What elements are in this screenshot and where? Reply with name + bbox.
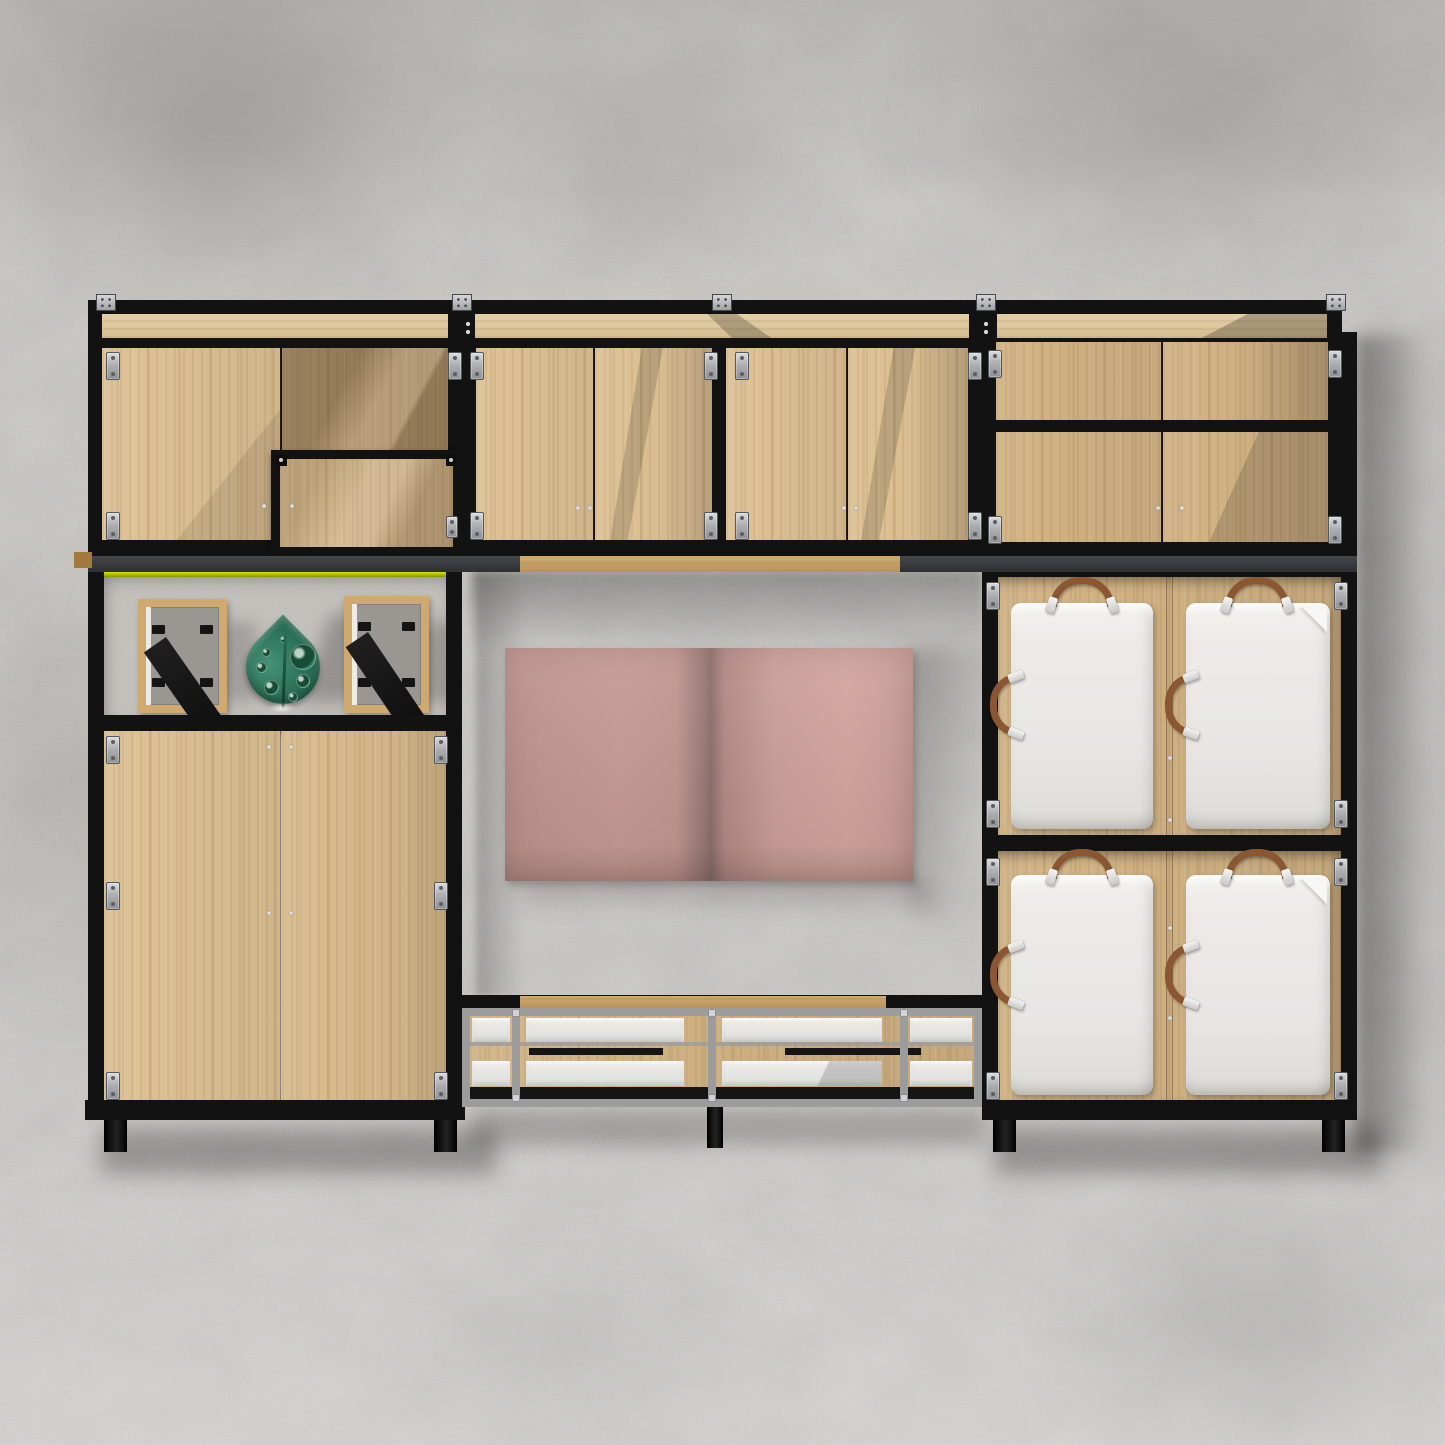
upper-cabinet-center xyxy=(462,300,982,556)
support-leg xyxy=(993,1120,1016,1152)
door-zone xyxy=(476,348,712,540)
frame-clip-icon xyxy=(152,625,165,634)
screw-dot xyxy=(289,745,293,749)
hinge-icon xyxy=(106,736,120,764)
screw-dot xyxy=(289,911,293,915)
hinge-icon xyxy=(986,582,1000,610)
cabinet-door xyxy=(104,731,280,1100)
locker-row xyxy=(998,577,1341,835)
hinge-icon xyxy=(988,350,1002,378)
support-leg xyxy=(707,1107,723,1148)
hinge-icon xyxy=(704,352,718,380)
panel-shade xyxy=(475,314,969,338)
inset-cabinet xyxy=(271,450,462,556)
screw-dot xyxy=(588,506,592,510)
top-panel xyxy=(102,314,448,338)
hinge-icon xyxy=(106,512,120,540)
door-zone xyxy=(726,348,968,540)
door-shade xyxy=(848,348,968,540)
door-edge-shade xyxy=(282,731,446,1100)
frame-joint xyxy=(901,1010,907,1016)
tall-cabinet xyxy=(104,731,446,1100)
screw-dot xyxy=(290,504,294,508)
door-edge-shade xyxy=(595,348,712,540)
hinge-icon xyxy=(1334,582,1348,610)
hinge-icon xyxy=(986,800,1000,828)
mount-bracket-icon xyxy=(976,294,996,311)
strap-handle xyxy=(1165,673,1195,737)
hinge-icon xyxy=(1334,800,1348,828)
wall-blotch xyxy=(360,1230,780,1445)
strap-handle xyxy=(1225,849,1289,879)
hinge-icon xyxy=(988,516,1002,544)
strap-handle xyxy=(990,673,1020,737)
screw-dot xyxy=(1156,506,1160,510)
left-column-post xyxy=(446,556,462,1100)
hinge-icon xyxy=(735,352,749,380)
support-leg xyxy=(104,1120,127,1152)
corner-bracket-icon xyxy=(276,455,287,466)
leaf-hole xyxy=(256,662,267,673)
frame-joint xyxy=(709,1010,715,1016)
locker-door xyxy=(998,577,1166,835)
leaf-hole xyxy=(296,674,310,688)
locker-cabinet xyxy=(982,560,1357,1120)
wall-blotch xyxy=(430,40,850,300)
middle-rail-wood-insert xyxy=(520,556,900,572)
locker-door xyxy=(1173,851,1341,1100)
upholstered-panel xyxy=(1186,875,1330,1095)
hinge-icon xyxy=(106,1072,120,1100)
shelf-bottom-rail xyxy=(88,715,462,731)
hinge-icon xyxy=(470,512,484,540)
bench-mid-rail xyxy=(470,1042,974,1046)
cabinet-door xyxy=(595,348,712,540)
middle-rail-end-tab xyxy=(74,552,92,568)
hinge-icon xyxy=(446,516,458,538)
screw-dot xyxy=(267,911,271,915)
hinge-icon xyxy=(434,1072,448,1100)
cabinet-door xyxy=(1163,432,1328,542)
cabinet-door xyxy=(476,348,593,540)
mount-bracket-icon xyxy=(712,294,732,311)
inset-door xyxy=(280,459,453,547)
wall-blotch xyxy=(880,0,1445,300)
hinge-icon xyxy=(106,882,120,910)
frame-clip-icon xyxy=(402,622,415,631)
hinge-icon xyxy=(1334,858,1348,886)
hinge-icon xyxy=(735,512,749,540)
frame-joint xyxy=(709,1095,715,1101)
mount-bracket-icon xyxy=(452,294,472,311)
drawer-front xyxy=(1163,342,1328,420)
hinge-icon xyxy=(1328,350,1342,378)
cabinet-door xyxy=(102,348,280,540)
hinge-icon xyxy=(968,352,982,380)
drawer-shade xyxy=(1163,342,1328,420)
middle-rail xyxy=(88,556,1357,572)
leaf-hole xyxy=(262,648,271,657)
screw-dot xyxy=(1168,756,1172,760)
strap-handle xyxy=(1165,943,1195,1007)
furniture-render xyxy=(0,0,1445,1445)
drawer-row xyxy=(996,342,1328,420)
hinge-icon xyxy=(448,352,462,380)
screw-dot xyxy=(1180,506,1184,510)
right-side-post xyxy=(1342,332,1357,572)
screw-dot xyxy=(854,506,858,510)
hinge-icon xyxy=(434,882,448,910)
hinge-icon xyxy=(986,858,1000,886)
support-leg xyxy=(434,1120,457,1152)
screw-dot xyxy=(984,330,988,334)
bench-post xyxy=(900,1008,908,1107)
locker-door xyxy=(998,851,1166,1100)
door-shade xyxy=(1163,432,1328,542)
frame-clip-icon xyxy=(358,622,371,631)
drawer-front xyxy=(996,342,1161,420)
strap-handle xyxy=(1225,577,1289,607)
screw-dot xyxy=(984,322,988,326)
screw-dot xyxy=(267,745,271,749)
top-panel xyxy=(475,314,969,338)
frame-clip-icon xyxy=(200,625,213,634)
leaf-hole xyxy=(264,680,279,695)
leaf-gloss xyxy=(268,703,296,713)
cabinet-door xyxy=(996,432,1161,542)
upper-cabinet-right xyxy=(982,300,1342,556)
screw-dot xyxy=(576,506,580,510)
frame-clip-icon xyxy=(200,678,213,687)
tv-sheen xyxy=(505,648,913,881)
hinge-icon xyxy=(1328,516,1342,544)
leaf-sculpture xyxy=(242,618,324,716)
door-shade xyxy=(595,348,712,540)
screw-dot xyxy=(842,506,846,510)
bench-post xyxy=(512,1008,520,1107)
upholstered-panel xyxy=(1011,603,1153,829)
screw-dot xyxy=(1168,926,1172,930)
screw-dot xyxy=(262,504,266,508)
mount-bracket-icon xyxy=(96,294,116,311)
frame-joint xyxy=(513,1010,519,1016)
door-edge-shade xyxy=(848,348,968,540)
corner-bracket-icon xyxy=(446,455,457,466)
bottom-rail-left xyxy=(85,1100,465,1120)
frame-joint xyxy=(901,1095,907,1101)
upper-cabinet-left xyxy=(88,300,462,556)
mount-bracket-icon xyxy=(1326,294,1346,311)
media-bench xyxy=(462,995,982,1107)
hinge-icon xyxy=(434,736,448,764)
locker-door xyxy=(1173,577,1341,835)
cabinet-door xyxy=(282,731,446,1100)
strap-handle xyxy=(1050,849,1114,879)
screw-dot xyxy=(466,322,470,326)
leaf-hole xyxy=(288,692,298,702)
wall-blotch xyxy=(1030,1170,1445,1445)
screw-dot xyxy=(1168,818,1172,822)
hinge-icon xyxy=(704,512,718,540)
door-zone xyxy=(996,432,1328,542)
cabinet-door xyxy=(848,348,968,540)
screw-dot xyxy=(466,330,470,334)
hinge-icon xyxy=(986,1072,1000,1100)
bench-top-board xyxy=(520,996,886,1008)
upholstered-panel xyxy=(1011,875,1153,1095)
hinge-icon xyxy=(106,352,120,380)
door-shade xyxy=(102,348,280,540)
hinge-icon xyxy=(1334,1072,1348,1100)
tv-screen xyxy=(505,648,913,881)
top-panel xyxy=(997,314,1327,338)
frame-joint xyxy=(513,1095,519,1101)
inset-shade xyxy=(280,459,453,547)
support-leg xyxy=(1322,1120,1345,1152)
upholstered-panel xyxy=(1186,603,1330,829)
screw-dot xyxy=(1168,1016,1172,1020)
leaf-hole xyxy=(290,644,316,670)
hinge-icon xyxy=(968,512,982,540)
locker-row xyxy=(998,851,1341,1100)
left-column-post xyxy=(88,556,104,1100)
panel-shade xyxy=(997,314,1327,338)
hinge-icon xyxy=(470,352,484,380)
strap-handle xyxy=(990,943,1020,1007)
wall-blotch xyxy=(0,0,500,330)
strap-handle xyxy=(1050,577,1114,607)
shelf-accent-strip xyxy=(104,572,446,577)
bench-post xyxy=(708,1008,716,1107)
